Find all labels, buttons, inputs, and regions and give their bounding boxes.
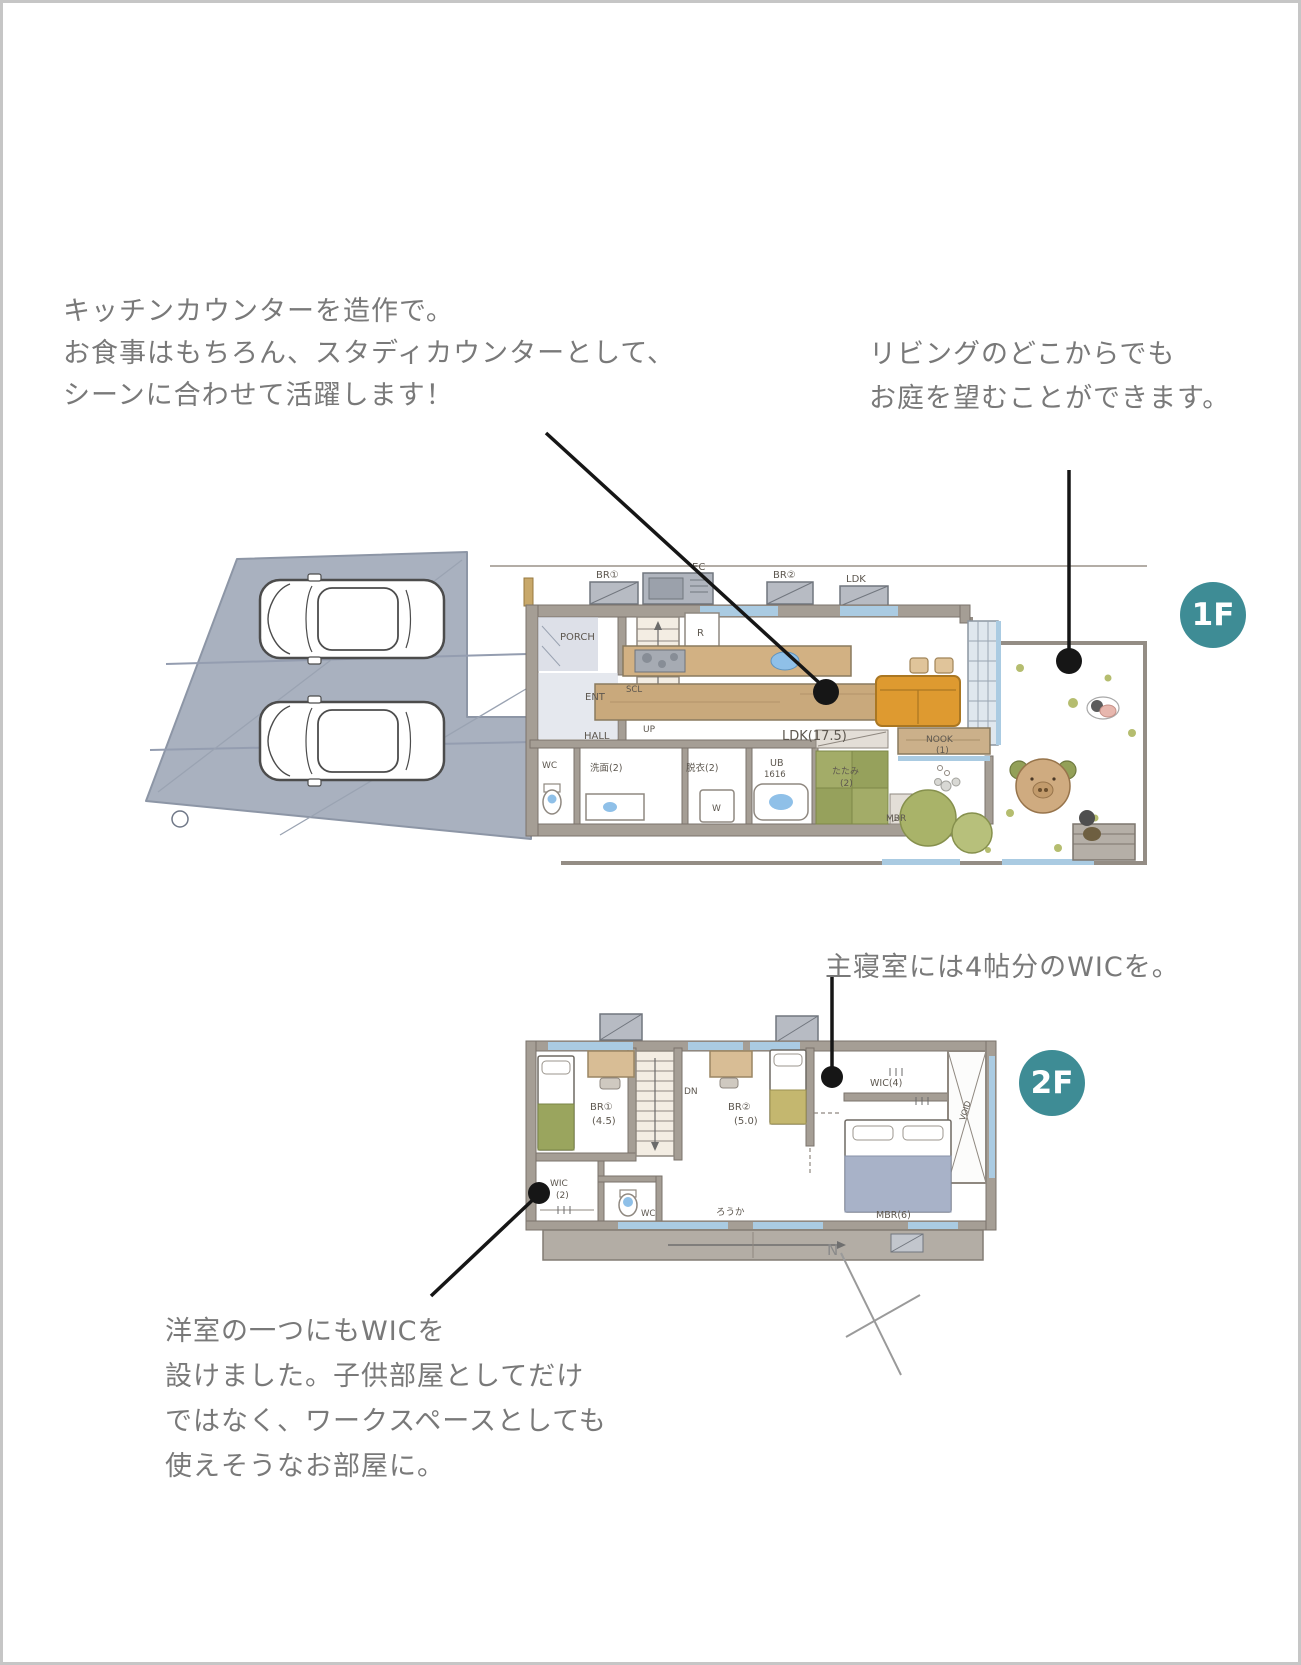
annotation-line: 洋室の一つにもWICを	[165, 1309, 607, 1354]
label-dn: DN	[684, 1087, 698, 1097]
label-corridor: ろうか	[716, 1207, 745, 1218]
label-mbr-1f: MBR	[886, 814, 906, 824]
pig-table	[1010, 759, 1076, 813]
annotation-line: お食事はもちろん、スタディカウンターとして、	[63, 333, 675, 375]
floor-badge-2f: 2F	[1019, 1050, 1085, 1116]
garden-bench	[1073, 810, 1135, 860]
label-scl: SCL	[626, 685, 642, 695]
annotation-line: リビングのどこからでも	[869, 333, 1230, 377]
label-senmen: 洗面(2)	[590, 762, 622, 774]
label-fridge: R	[697, 628, 704, 639]
annotation-line: お庭を望むことができます。	[869, 377, 1230, 421]
window	[840, 606, 898, 616]
bed-mbr	[845, 1120, 951, 1212]
annotation-kitchen-counter: キッチンカウンターを造作で。 お食事はもちろん、スタディカウンターとして、 シー…	[63, 291, 675, 417]
annotation-line: 主寝室には4帖分のWICを。	[825, 947, 1180, 989]
label-washer: W	[712, 804, 721, 814]
car-icon	[260, 696, 444, 786]
label-tatami1: たたみ	[832, 766, 859, 777]
label-porch: PORCH	[560, 632, 595, 643]
label-datsui: 脱衣(2)	[686, 762, 718, 774]
desk	[710, 1051, 752, 1077]
chair	[720, 1078, 738, 1088]
label-hall: HALL	[584, 731, 610, 742]
floor-plan-1f: BR① EC BR② LDK	[140, 518, 1155, 890]
toilet-2f	[619, 1190, 637, 1216]
label-ac-br2: BR②	[773, 570, 796, 581]
window	[548, 1042, 633, 1050]
stairs-2f	[636, 1051, 674, 1156]
window	[750, 1042, 800, 1050]
person-figure	[1087, 697, 1119, 719]
desk	[588, 1051, 634, 1077]
annotation-line: ではなく、ワークスペースとしても	[165, 1399, 607, 1444]
ac-units-2f	[600, 1014, 818, 1042]
label-up: UP	[643, 725, 656, 735]
porch-floor	[538, 617, 598, 671]
label-br2-size: (5.0)	[734, 1116, 758, 1127]
balcony	[543, 1230, 983, 1260]
kitchen-counter	[623, 646, 851, 676]
floor-plan-2f: VOID	[488, 998, 1008, 1283]
page: キッチンカウンターを造作で。 お食事はもちろん、スタディカウンターとして、 シー…	[0, 0, 1301, 1665]
label-ldk: LDK(17.5)	[782, 729, 847, 744]
sofa	[876, 676, 960, 726]
annotation-living-garden: リビングのどこからでも お庭を望むことができます。	[869, 333, 1230, 421]
label-ac-br1: BR①	[596, 570, 619, 581]
annotation-kids-wic: 洋室の一つにもWICを 設けました。子供部屋としてだけ ではなく、ワークスペース…	[165, 1309, 607, 1489]
gate-post	[524, 578, 533, 606]
annotation-line: シーンに合わせて活躍します！	[63, 375, 675, 417]
ac-units-1f: BR① EC BR② LDK	[590, 562, 888, 606]
label-ac-ec: EC	[692, 562, 705, 573]
label-ac-ldk: LDK	[846, 574, 866, 585]
label-tatami2: (2)	[840, 779, 853, 789]
label-wic2-size: (2)	[556, 1191, 569, 1201]
label-wc: WC	[542, 761, 557, 771]
car-icon	[260, 574, 444, 664]
label-ent: ENT	[585, 692, 606, 703]
label-wic4: WIC(4)	[870, 1078, 902, 1089]
label-ub1: UB	[770, 758, 783, 769]
chair	[600, 1078, 620, 1089]
label-br1-size: (4.5)	[592, 1116, 616, 1127]
label-nook2: (1)	[936, 746, 949, 756]
label-br1: BR①	[590, 1102, 613, 1113]
floor-badge-1f: 1F	[1180, 582, 1246, 648]
window	[618, 1222, 728, 1229]
label-mbr-2f: MBR(6)	[876, 1210, 911, 1221]
annotation-line: キッチンカウンターを造作で。	[63, 291, 675, 333]
bathtub	[754, 784, 808, 820]
vanity	[586, 794, 644, 820]
label-wic2: WIC	[550, 1179, 568, 1189]
window	[753, 1222, 823, 1229]
bed-br2	[770, 1050, 806, 1124]
window	[688, 1042, 743, 1050]
living-window	[968, 621, 1001, 745]
label-ub2: 1616	[764, 770, 786, 780]
annotation-line: 使えそうなお部屋に。	[165, 1444, 607, 1489]
bed-br1	[538, 1056, 574, 1150]
label-wc-2f: WC	[641, 1209, 655, 1219]
toilet	[543, 784, 561, 814]
window	[882, 859, 960, 865]
window	[908, 1222, 958, 1229]
label-br2: BR②	[728, 1102, 751, 1113]
annotation-master-wic: 主寝室には4帖分のWICを。	[825, 947, 1180, 989]
garden-trees	[900, 778, 992, 853]
annotation-line: 設けました。子供部屋としてだけ	[165, 1354, 607, 1399]
label-nook1: NOOK	[926, 735, 954, 745]
